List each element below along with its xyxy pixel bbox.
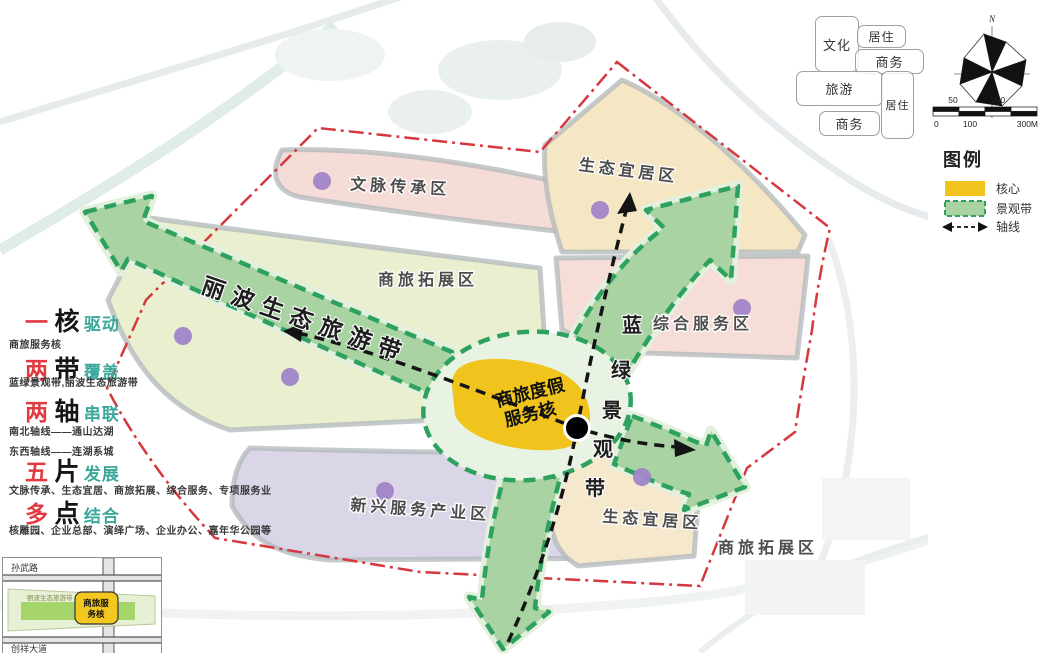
inset-road-bottom-label: 创祥大道: [11, 643, 47, 653]
scale-tick: 100: [963, 119, 977, 129]
strategy-desc-1: 商旅服务核: [9, 336, 62, 351]
inset-core-line2: 务核: [87, 609, 105, 619]
tag-label: 旅游: [825, 79, 853, 98]
location-inset-map: 丽波生态旅游带 商旅服 务核 孙武路 创祥大道: [2, 557, 162, 653]
legend-swatch-landscape-belt: [945, 201, 985, 216]
compass-north-label: N: [988, 14, 996, 24]
tag-label: 文化: [823, 35, 851, 54]
strategy-number: 两: [25, 399, 50, 425]
strategy-verb: 串联: [84, 405, 120, 424]
inset-core-line1: 商旅服: [83, 598, 109, 608]
legend: 图例 核心 景观带 轴线: [942, 149, 1032, 234]
tag-label: 居住: [886, 97, 910, 113]
planning-map-page: 丽波生态旅游带 蓝 绿 景 观 带 商旅度假 服务核 文脉传承区 商旅拓展区 生…: [0, 0, 1043, 653]
tag-box-tourism: 旅游: [796, 71, 883, 106]
scale-tick: 0: [934, 119, 939, 129]
strategy-unit: 轴: [54, 398, 79, 426]
scale-tick: 50: [948, 95, 958, 105]
legend-title: 图例: [943, 149, 983, 170]
band-vertical-char: 景: [602, 399, 622, 422]
legend-swatch-core: [945, 181, 985, 196]
strategy-number: 一: [25, 309, 50, 335]
tag-label: 居住: [868, 28, 894, 45]
inset-top-road: [3, 575, 161, 581]
purple-dot: [733, 299, 751, 317]
scale-tick: 300M: [1017, 119, 1038, 129]
purple-dot: [313, 172, 331, 190]
axis-crossing-node: [565, 416, 590, 441]
strategy-unit: 核: [54, 308, 79, 336]
scale-tick: 200: [991, 95, 1005, 105]
band-vertical-char: 蓝: [622, 314, 642, 337]
legend-label-core: 核心: [996, 182, 1020, 196]
band-vertical-char: 观: [593, 439, 613, 461]
purple-dot: [376, 482, 394, 500]
strategy-desc-3a: 南北轴线——通山达湖: [9, 423, 114, 438]
strategy-heading-1: 一 核 驱动: [25, 302, 120, 338]
panel-graphics: N 50 200 0 100 300M: [928, 0, 1043, 653]
tag-label: 商务: [835, 114, 863, 133]
purple-dot: [281, 368, 299, 386]
strategy-desc-5: 核雕园、企业总部、演绎广场、企业办公、嘉年华公园等: [9, 522, 272, 537]
inset-road-top-label: 孙武路: [11, 562, 38, 573]
inset-graphics: 丽波生态旅游带 商旅服 务核 孙武路 创祥大道: [3, 558, 161, 653]
tag-label: 商务: [875, 52, 903, 71]
legend-label-landscape-belt: 景观带: [996, 202, 1032, 216]
strategy-desc-2: 蓝绿景观带,丽波生态旅游带: [9, 374, 138, 389]
legend-axis-symbol: [942, 222, 988, 232]
tag-box-residence-a: 居住: [857, 25, 906, 48]
inset-core-box: [75, 592, 118, 624]
tag-box-residence-b: 居住: [881, 71, 914, 139]
purple-dot: [591, 201, 609, 219]
purple-dot: [633, 468, 651, 486]
strategy-verb: 驱动: [84, 315, 120, 334]
tag-box-commerce-b: 商务: [819, 111, 880, 136]
tag-box-culture: 文化: [815, 16, 859, 72]
legend-label-axis: 轴线: [996, 219, 1020, 234]
inset-eco-belt-label: 丽波生态旅游带: [27, 593, 73, 602]
purple-dot: [174, 327, 192, 345]
map-info-panel: N 50 200 0 100 300M: [928, 0, 1043, 653]
band-vertical-char: 绿: [611, 358, 632, 382]
zone-label-service: 综合服务区: [653, 314, 753, 333]
zone-label-business-top: 商旅拓展区: [378, 270, 478, 289]
inset-bottom-road: [3, 637, 161, 643]
band-vertical-char: 带: [585, 477, 605, 500]
zone-label-business-bottom: 商旅拓展区: [718, 538, 818, 557]
